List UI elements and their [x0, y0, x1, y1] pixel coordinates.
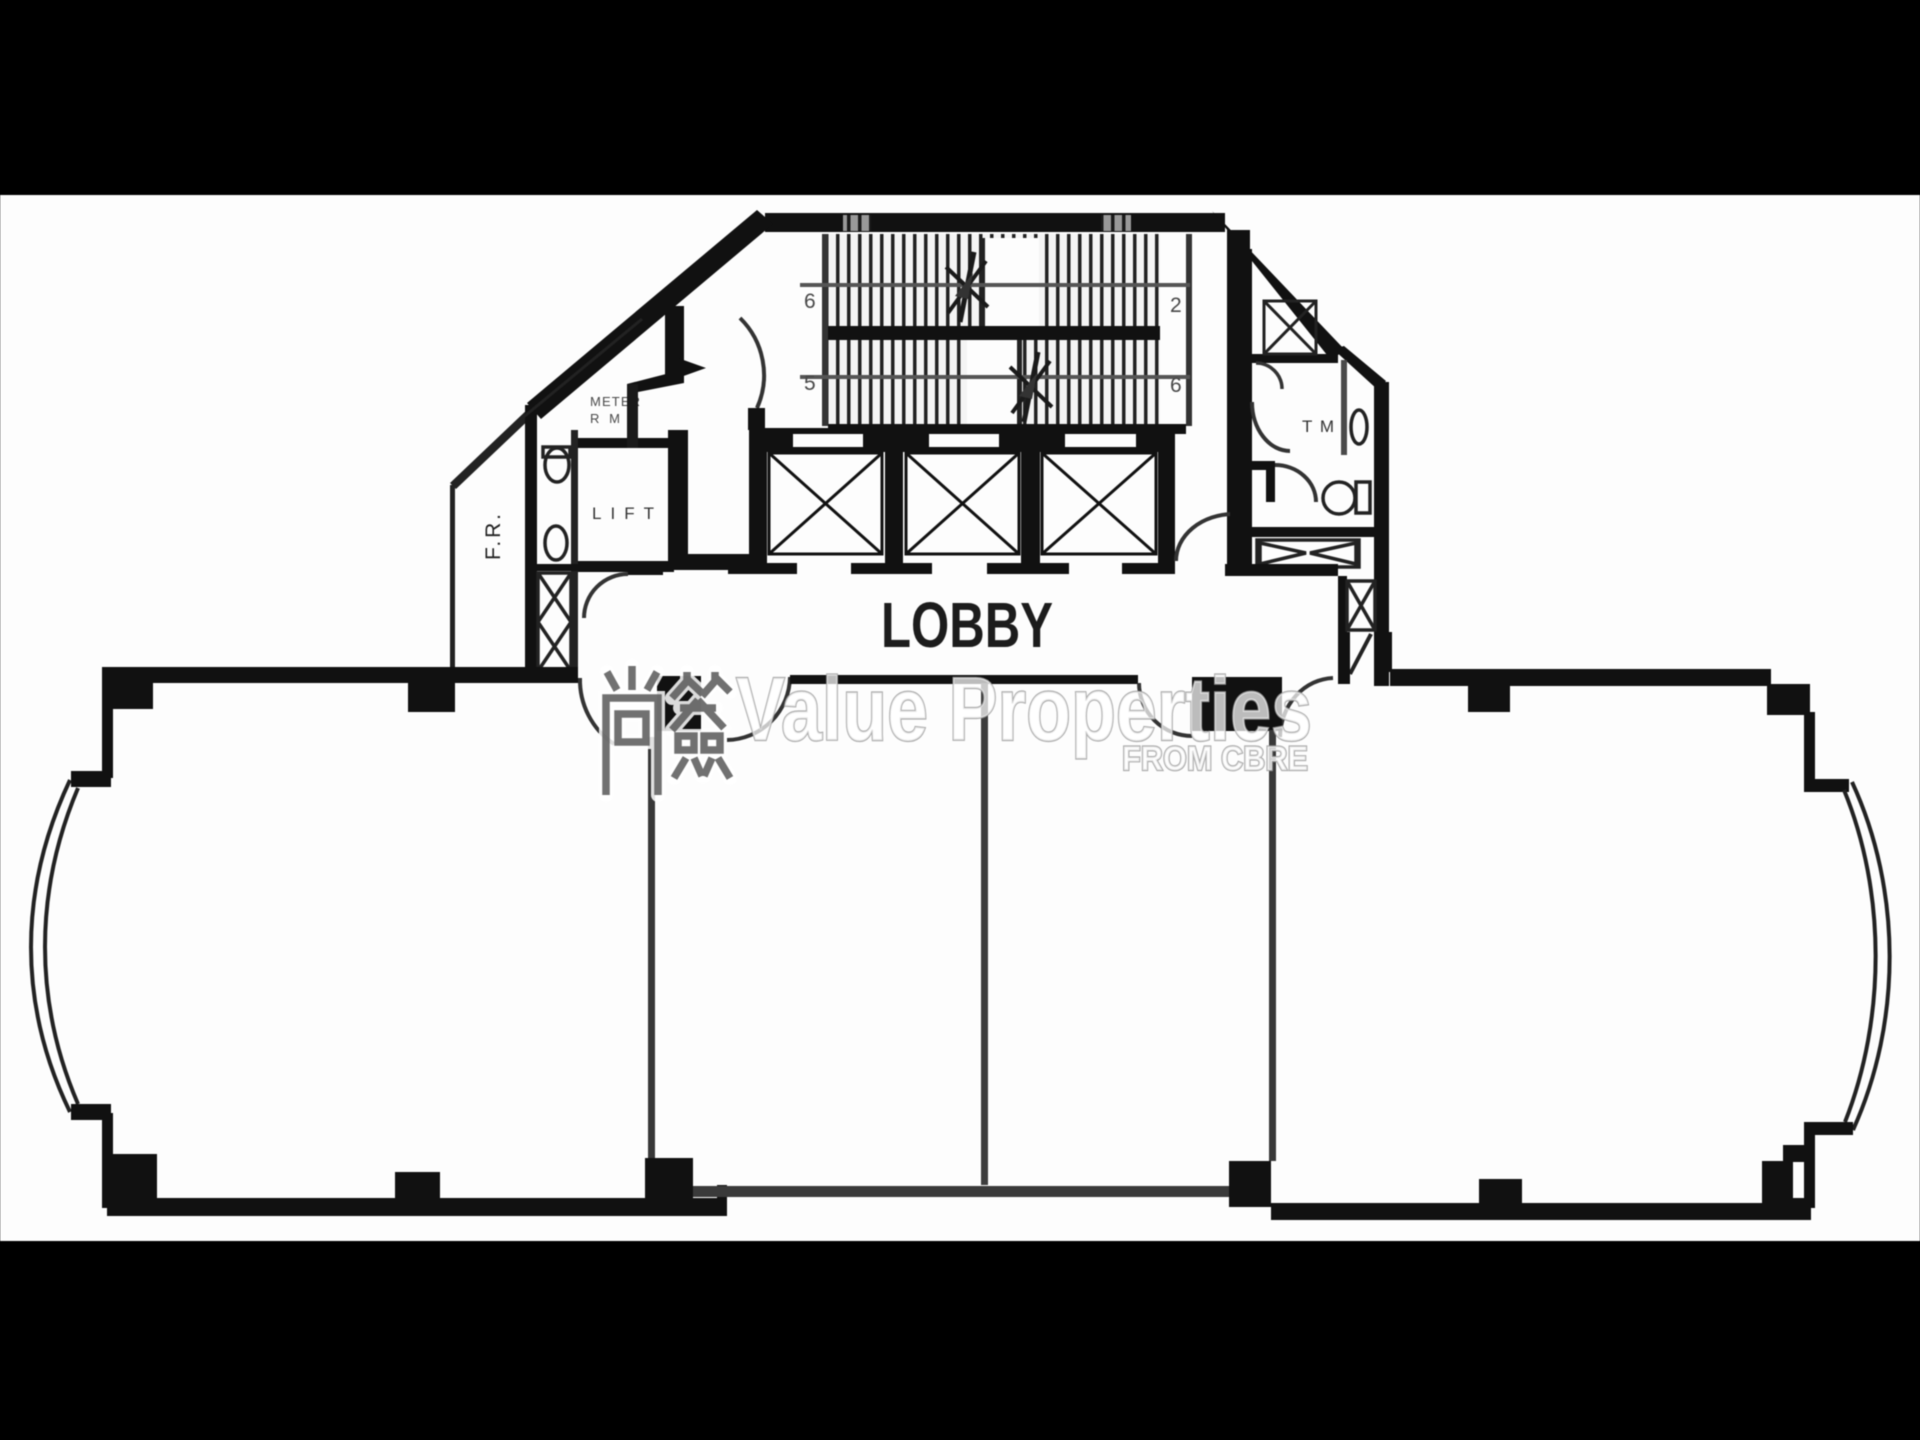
- svg-text:LOBBY: LOBBY: [881, 589, 1053, 661]
- svg-text:FROM CBRE: FROM CBRE: [1122, 740, 1308, 778]
- svg-text:6: 6: [804, 290, 816, 313]
- svg-text:2: 2: [1170, 294, 1182, 317]
- svg-text:6: 6: [1170, 374, 1182, 397]
- svg-text:5: 5: [804, 372, 816, 395]
